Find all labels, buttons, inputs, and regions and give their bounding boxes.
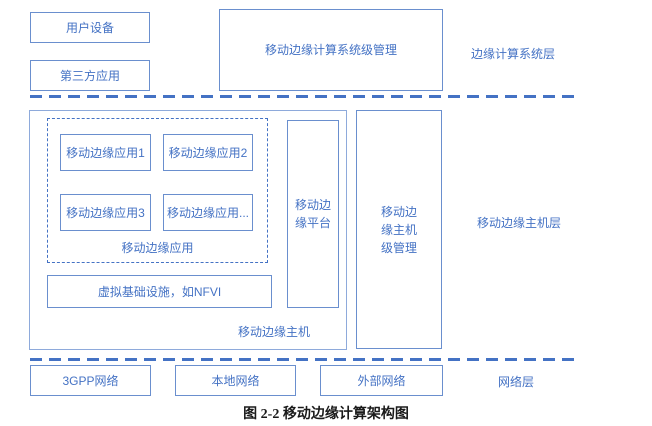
host-box-label: 移动边缘主机 xyxy=(238,323,310,340)
apps-group-label: 移动边缘应用 xyxy=(47,239,268,256)
network-external-box: 外部网络 xyxy=(320,365,443,396)
edge-app-3-box: 移动边缘应用3 xyxy=(60,194,151,231)
network-local-box: 本地网络 xyxy=(175,365,296,396)
host-level-management-label: 移动边缘主机级管理 xyxy=(380,203,418,257)
mobile-edge-platform-box: 移动边缘平台 xyxy=(287,120,339,308)
network-3gpp-box: 3GPP网络 xyxy=(30,365,151,396)
system-host-divider xyxy=(30,95,577,98)
virtual-infrastructure-nfvi-box: 虚拟基础设施，如NFVI xyxy=(47,275,272,308)
system-level-management-box: 移动边缘计算系统级管理 xyxy=(219,9,443,91)
mobile-edge-platform-label: 移动边缘平台 xyxy=(294,196,332,232)
edge-app-1-box: 移动边缘应用1 xyxy=(60,134,151,171)
figure-caption: 图 2-2 移动边缘计算架构图 xyxy=(0,403,652,423)
edge-app-more-box: 移动边缘应用... xyxy=(163,194,253,231)
host-network-divider xyxy=(30,358,577,361)
edge-app-2-box: 移动边缘应用2 xyxy=(163,134,253,171)
system-layer-label: 边缘计算系统层 xyxy=(471,45,555,62)
network-layer-label: 网络层 xyxy=(498,373,534,390)
host-layer-label: 移动边缘主机层 xyxy=(477,214,561,231)
mec-architecture-diagram: 用户设备 第三方应用 移动边缘计算系统级管理 边缘计算系统层 移动边缘应用1 移… xyxy=(0,0,652,426)
third-party-app-box: 第三方应用 xyxy=(30,60,150,91)
user-device-box: 用户设备 xyxy=(30,12,150,43)
host-level-management-box: 移动边缘主机级管理 xyxy=(356,110,442,349)
